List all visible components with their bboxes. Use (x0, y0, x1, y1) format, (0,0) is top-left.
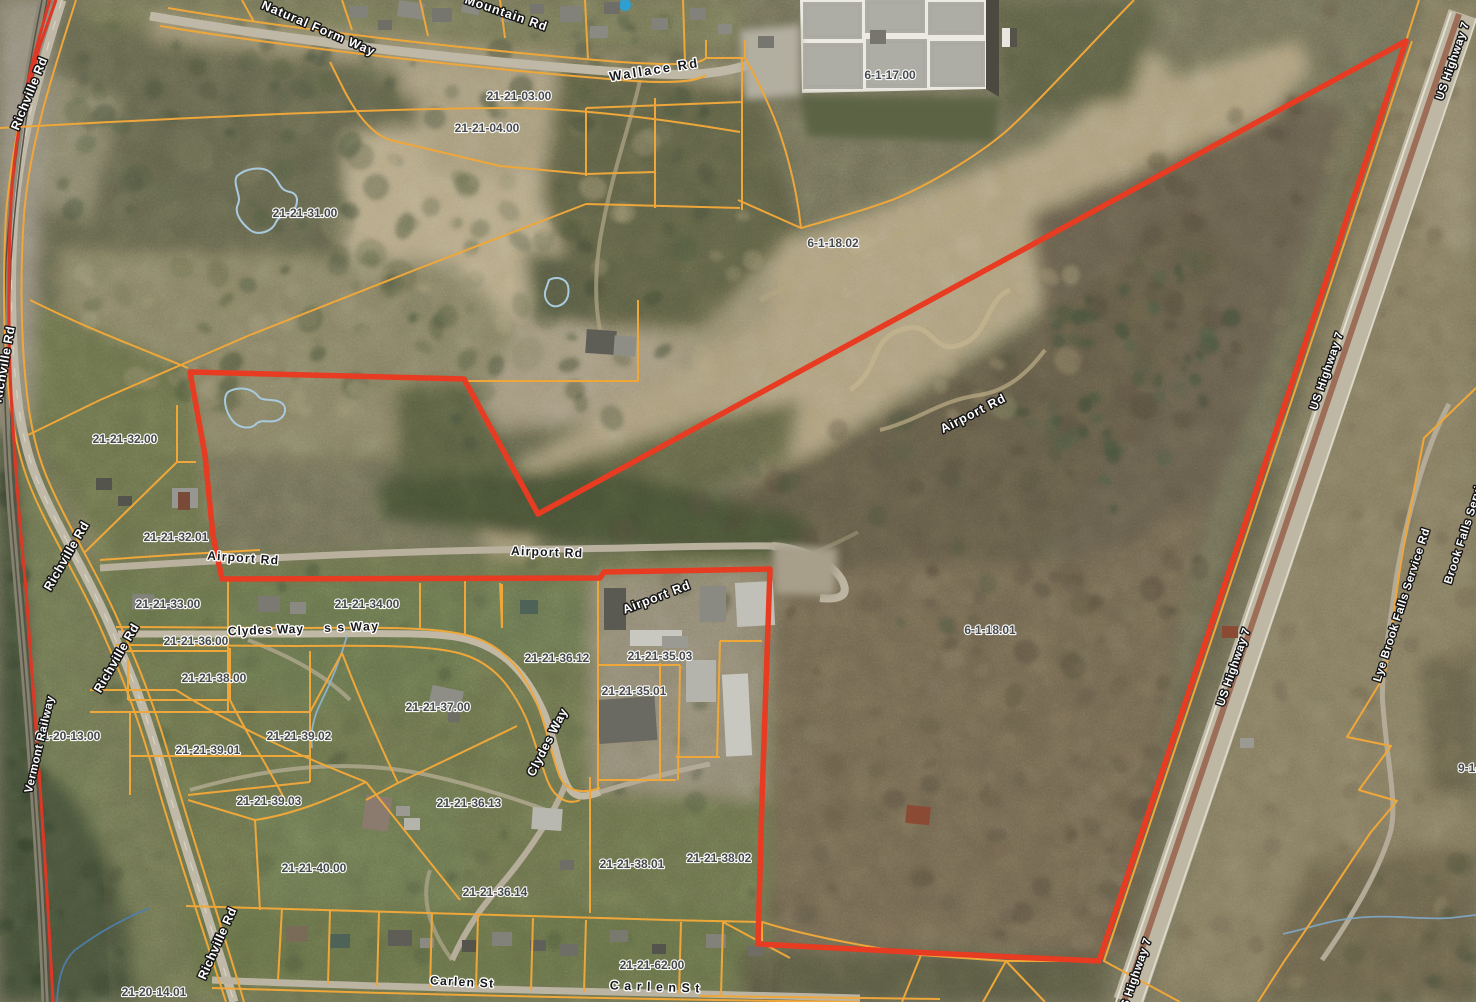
svg-text:21-21-39.02: 21-21-39.02 (267, 729, 332, 743)
svg-text:21-21-34.00: 21-21-34.00 (335, 597, 400, 611)
svg-text:21-21-36.14: 21-21-36.14 (463, 885, 528, 899)
svg-text:21-21-32.01: 21-21-32.01 (144, 530, 209, 544)
svg-text:21-21-38.00: 21-21-38.00 (182, 671, 247, 685)
svg-text:21-21-36.12: 21-21-36.12 (525, 651, 590, 665)
svg-text:21-21-40.00: 21-21-40.00 (282, 861, 347, 875)
svg-text:21-21-04.00: 21-21-04.00 (455, 121, 520, 135)
svg-text:21-21-31.00: 21-21-31.00 (273, 206, 338, 220)
svg-text:6-1-18.01: 6-1-18.01 (964, 623, 1016, 637)
svg-text:21-21-36.00: 21-21-36.00 (164, 634, 229, 648)
svg-text:21-21-35.01: 21-21-35.01 (602, 684, 667, 698)
svg-text:21-21-38.02: 21-21-38.02 (687, 851, 752, 865)
svg-text:21-21-33.00: 21-21-33.00 (136, 597, 201, 611)
svg-text:21-21-62.00: 21-21-62.00 (620, 958, 685, 972)
svg-text:21-21-39.03: 21-21-39.03 (237, 794, 302, 808)
svg-text:21-21-35.03: 21-21-35.03 (628, 649, 693, 663)
svg-text:21-21-37.00: 21-21-37.00 (406, 700, 471, 714)
svg-text:21-21-03.00: 21-21-03.00 (487, 89, 552, 103)
svg-text:6-1-18.02: 6-1-18.02 (807, 236, 859, 250)
svg-text:21-21-36.13: 21-21-36.13 (437, 796, 502, 810)
svg-text:s s Way: s s Way (324, 619, 380, 635)
svg-text:21-21-39.01: 21-21-39.01 (176, 743, 241, 757)
svg-text:6-1-17.00: 6-1-17.00 (864, 68, 916, 82)
svg-text:21-20-14.01: 21-20-14.01 (122, 985, 187, 999)
svg-text:21-21-38.01: 21-21-38.01 (600, 857, 665, 871)
svg-text:21-21-32.00: 21-21-32.00 (93, 432, 158, 446)
svg-text:Airport Rd: Airport Rd (511, 544, 584, 561)
svg-text:9-1-1: 9-1-1 (1458, 761, 1476, 775)
svg-text:Clydes Way: Clydes Way (228, 622, 304, 639)
